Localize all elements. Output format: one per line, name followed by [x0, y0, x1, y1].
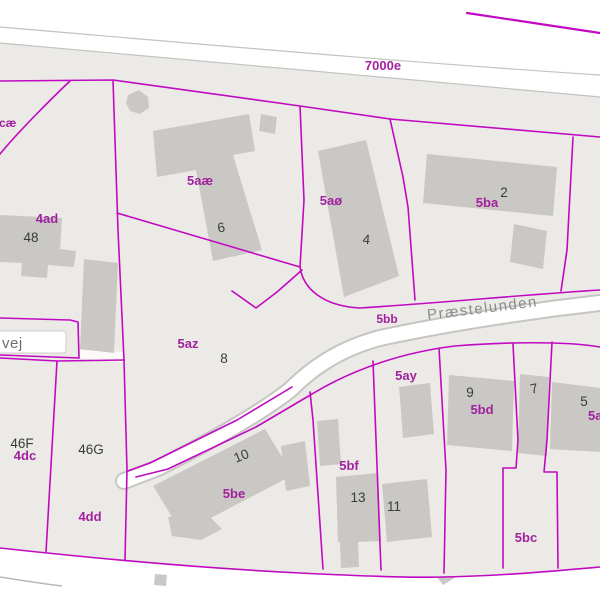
parcel-label-5bd: 5bd: [470, 402, 493, 417]
house-number-46F: 46F: [10, 436, 33, 451]
parcel-label-5bc: 5bc: [515, 530, 537, 545]
vej-label-group: vej: [0, 331, 66, 353]
building-small-top: [259, 114, 277, 134]
parcel-label-5az: 5az: [178, 336, 199, 351]
parcel-label-4dd: 4dd: [78, 509, 101, 524]
parcel-label-5aae: 5aæ: [187, 173, 213, 188]
house-number-5: 5: [580, 394, 588, 409]
building-triangle-bottom: [437, 577, 456, 585]
parcel-label-5ay: 5ay: [395, 368, 417, 383]
house-number-48: 48: [23, 230, 38, 245]
house-number-8: 8: [220, 351, 228, 366]
parcel-label-5be: 5be: [223, 486, 245, 501]
parcel-label-5bf: 5bf: [339, 458, 359, 473]
house-number-13: 13: [350, 490, 365, 505]
boundary-topright-segment: [467, 13, 600, 33]
building-48-annex: [80, 259, 118, 353]
road-label-7000e: 7000e: [365, 58, 401, 73]
street-label-vej: vej: [2, 335, 23, 352]
parcel-label-5an: 5an: [588, 408, 600, 423]
bottom-left-road-casing: [0, 577, 62, 586]
house-number-2: 2: [500, 185, 508, 200]
parcel-label-5aoe: 5aø: [320, 193, 342, 208]
parcel-label-5bb: 5bb: [376, 312, 397, 326]
building-2-annex: [510, 224, 547, 269]
building-5ay: [399, 383, 434, 438]
building-small-bottom: [154, 574, 167, 586]
parcel-label-cae: cæ: [0, 116, 17, 130]
house-number-11: 11: [387, 499, 401, 514]
parcel-label-4ad: 4ad: [36, 211, 58, 226]
building-5bf-small: [317, 419, 341, 466]
house-number-9: 9: [466, 385, 474, 400]
parcel-label-5ba: 5ba: [476, 195, 499, 210]
building-10-annex: [281, 441, 310, 491]
map-canvas[interactable]: vej 7000e Præstelunden 5bb cæ 4ad 5aæ 5a…: [0, 0, 600, 600]
house-number-46G: 46G: [78, 442, 104, 457]
map-viewport: vej 7000e Præstelunden 5bb cæ 4ad 5aæ 5a…: [0, 0, 600, 600]
